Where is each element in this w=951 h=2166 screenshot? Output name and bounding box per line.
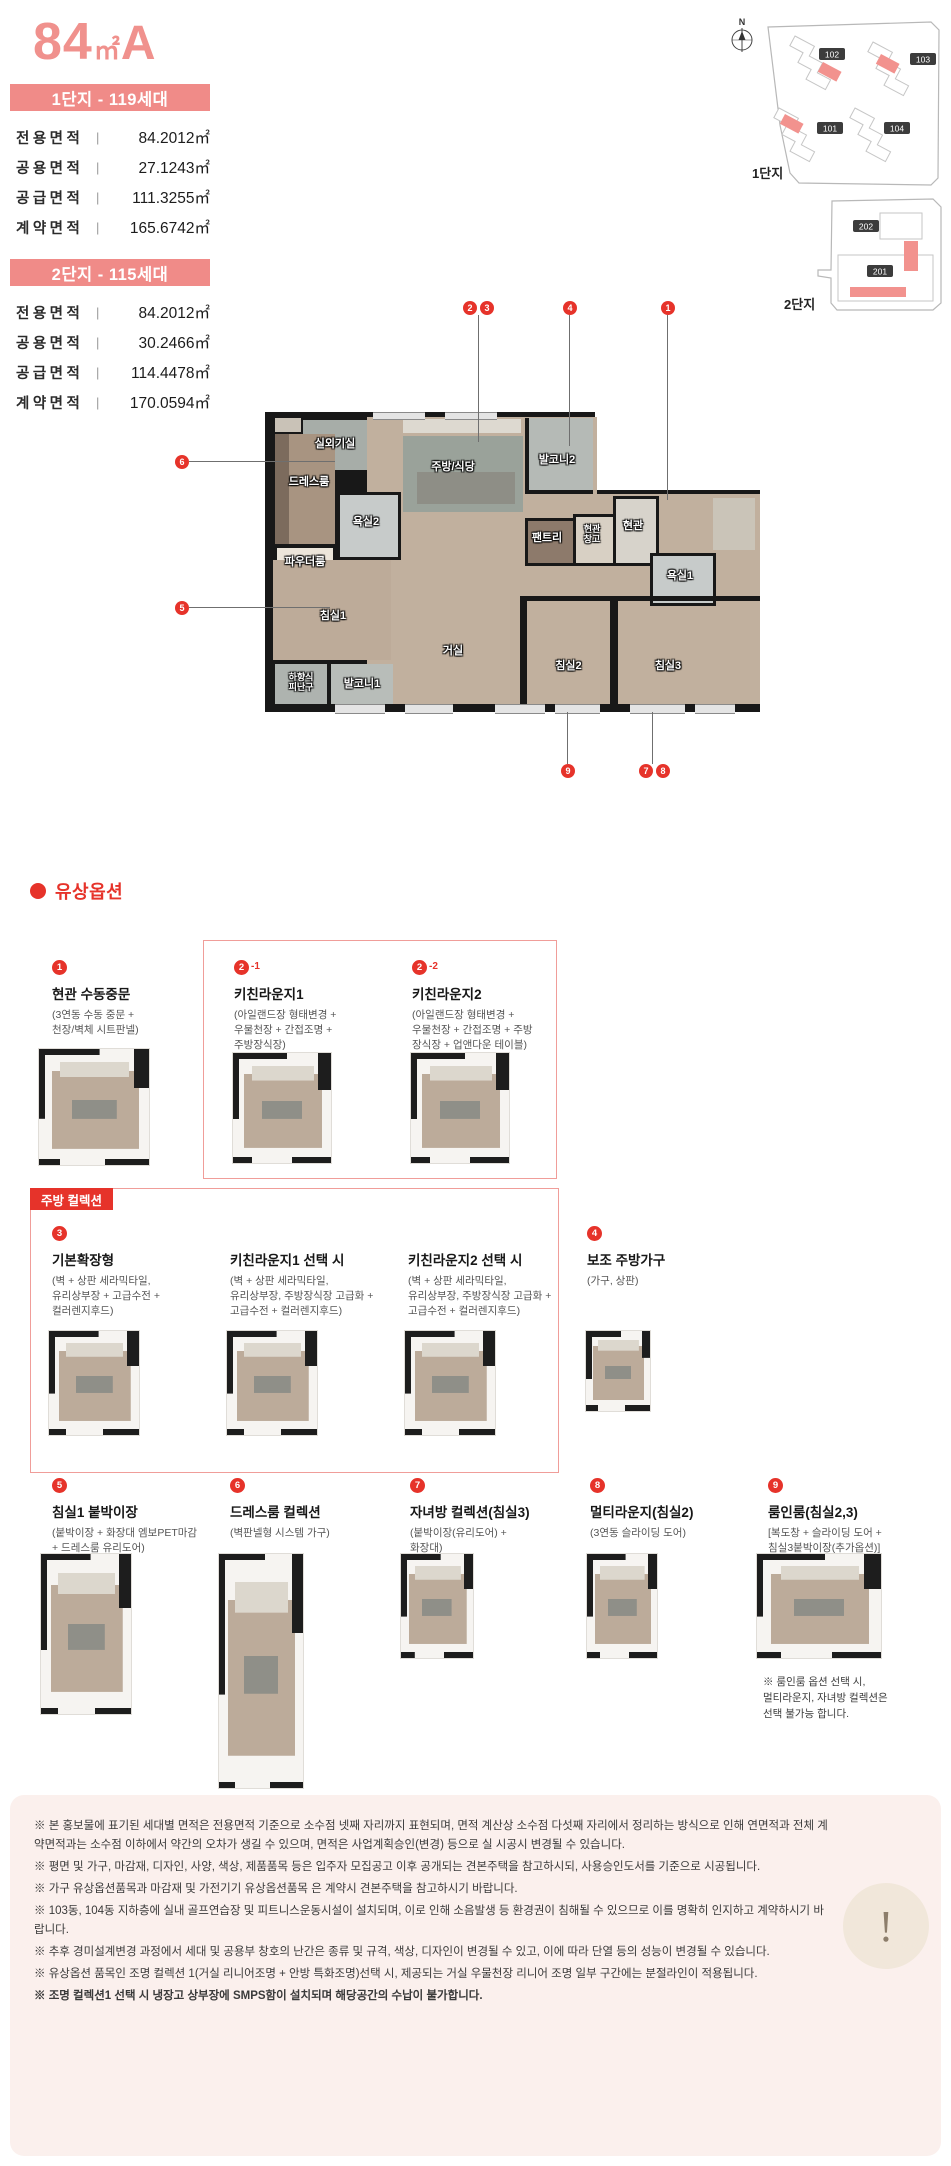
site-plan-complex1: N 102 103 101 104 1단지: [730, 10, 945, 192]
marker-line: [189, 607, 330, 608]
room-label: 파우더룸: [273, 556, 337, 569]
window: [373, 412, 425, 420]
exclamation-icon: !: [843, 1883, 929, 1969]
svg-text:N: N: [739, 17, 746, 27]
disclaimer-line: ※ 103동, 104동 지하층에 실내 골프연습장 및 피트니스운동시설이 설…: [34, 1902, 834, 1940]
option-desc: (붙박이장 + 화장대 엠보PET마감 + 드레스룸 유리도어): [52, 1526, 217, 1556]
disclaimer-text: ※ 본 홍보물에 표기된 세대별 면적은 전용면적 기준으로 소수점 넷째 자리…: [34, 1817, 834, 2009]
room-label: 발코니1: [331, 678, 393, 691]
option-desc: (아일랜드장 형태변경 + 우물천장 + 간접조명 + 주방 장식장 + 업앤다…: [412, 1008, 577, 1053]
option-title: 키친라운지1 선택 시: [230, 1249, 395, 1269]
room-label: 하향식 피난구: [275, 672, 327, 693]
option-thumbnail: [38, 1048, 150, 1166]
option-item-7: 7 자녀방 컬렉션(침실3) (붙박이장(유리도어) + 화장대): [410, 1478, 575, 1556]
disclaimer-line: ※ 평면 및 가구, 마감재, 디자인, 사양, 색상, 제품품목 등은 입주자…: [34, 1858, 834, 1877]
building-number: 103: [916, 55, 930, 65]
option-badge-row: 2-2: [412, 960, 577, 981]
window: [335, 704, 385, 714]
room-label: 팬트리: [521, 532, 573, 545]
area-value: 165.6742㎡: [101, 216, 210, 238]
area-divider: |: [96, 335, 99, 350]
area-row: 공용면적|27.1243㎡: [16, 152, 210, 182]
room-label: 침실2: [527, 660, 610, 673]
building-number: 102: [825, 50, 839, 60]
option-title: 키친라운지1: [234, 983, 399, 1003]
area-divider: |: [96, 305, 99, 320]
area-label: 전용면적: [16, 302, 94, 323]
option-thumbnail: [232, 1052, 332, 1164]
area-value: 84.2012㎡: [101, 126, 210, 148]
option-badge-row: 5: [52, 1478, 217, 1499]
marker-3: 3: [480, 301, 494, 315]
window: [495, 704, 545, 714]
disclaimer-line: ※ 유상옵션 품목인 조명 컬렉션 1(거실 리니어조명 + 안방 특화조명)선…: [34, 1965, 834, 1984]
floor-plan: 실외기실 드레스룸 파우더룸 욕실2 주방/식당 발코니2 팬트리 현관 창고 …: [265, 412, 760, 712]
option-title: 드레스룸 컬렉션: [230, 1501, 395, 1521]
kitchen-item-lounge2: 키친라운지2 선택 시 (벽 + 상판 세라믹타일, 유리상부장, 주방장식장 …: [408, 1226, 573, 1319]
area-row: 계약면적|170.0594㎡: [16, 387, 210, 417]
room-label: 발코니2: [525, 454, 589, 467]
building-202: [880, 213, 922, 239]
area-divider: |: [96, 365, 99, 380]
complex1-banner: 1단지 - 119세대: [10, 84, 210, 111]
area-row: 전용면적|84.2012㎡: [16, 122, 210, 152]
area-row: 계약면적|165.6742㎡: [16, 212, 210, 242]
option-title: 기본확장형: [52, 1249, 217, 1269]
area-row: 공용면적|30.2466㎡: [16, 327, 210, 357]
option-thumbnail: [48, 1330, 140, 1436]
option-desc: (벽 + 상판 세라믹타일, 유리상부장, 주방장식장 고급화 + 고급수전 +…: [230, 1274, 395, 1319]
option-number-badge: 4: [587, 1226, 602, 1241]
window: [445, 412, 497, 420]
paid-options-heading: 유상옵션: [30, 878, 123, 904]
option-number-badge: 5: [52, 1478, 67, 1493]
kitchen-island: [417, 472, 515, 504]
option-badge-row: [230, 1226, 395, 1247]
complex1-area-table: 전용면적|84.2012㎡ 공용면적|27.1243㎡ 공급면적|111.325…: [16, 122, 210, 242]
bullet-icon: [30, 883, 46, 899]
area-divider: |: [96, 220, 99, 235]
option-thumbnail: [756, 1553, 882, 1659]
brochure-page: 84㎡A 1단지 - 119세대 전용면적|84.2012㎡ 공용면적|27.1…: [0, 0, 951, 2166]
option-number-badge: 7: [410, 1478, 425, 1493]
option-desc: (벽 + 상판 세라믹타일, 유리상부장 + 고급수전 + 컬러렌지후드): [52, 1274, 217, 1319]
window: [695, 704, 735, 714]
option-thumbnail: [218, 1553, 304, 1789]
option-badge-row: 7: [410, 1478, 575, 1499]
option-badge-row: 3: [52, 1226, 217, 1247]
area-divider: |: [96, 160, 99, 175]
complex2-area-table: 전용면적|84.2012㎡ 공용면적|30.2466㎡ 공급면적|114.447…: [16, 297, 210, 417]
room-label: 침실3: [618, 660, 718, 673]
wall: [520, 596, 527, 704]
area-value: 30.2466㎡: [101, 331, 210, 353]
area-label: 전용면적: [16, 127, 94, 148]
unit-title: 84㎡A: [33, 12, 156, 72]
option-number-badge: 8: [590, 1478, 605, 1493]
option-desc: (벽판넬형 시스템 가구): [230, 1526, 395, 1541]
room-label: 욕실2: [337, 516, 395, 529]
option-title: 현관 수동중문: [52, 983, 217, 1003]
area-divider: |: [96, 395, 99, 410]
option-badge-row: 9: [768, 1478, 943, 1499]
option-title: 룸인룸(침실2,3): [768, 1501, 943, 1521]
room-label: 실외기실: [303, 438, 367, 451]
option-thumbnail: [586, 1553, 658, 1659]
marker-line: [478, 315, 479, 442]
unit-size: 84: [33, 12, 93, 72]
area-label: 공용면적: [16, 332, 94, 353]
area-value: 27.1243㎡: [101, 156, 210, 178]
option-suffix: -2: [429, 961, 438, 972]
option-number-badge: 1: [52, 960, 67, 975]
option-desc: (아일랜드장 형태변경 + 우물천장 + 간접조명 + 주방장식장): [234, 1008, 399, 1053]
kitchen-item-basic: 3 기본확장형 (벽 + 상판 세라믹타일, 유리상부장 + 고급수전 + 컬러…: [52, 1226, 217, 1319]
option-badge-row: 8: [590, 1478, 755, 1499]
option-title: 키친라운지2 선택 시: [408, 1249, 573, 1269]
marker-line: [567, 712, 568, 764]
option-suffix: -1: [251, 961, 260, 972]
marker-1: 1: [661, 301, 675, 315]
room-label: 거실: [413, 645, 493, 658]
plan-outside: [595, 412, 760, 490]
option-thumbnail: [400, 1553, 474, 1659]
room-utility: [713, 498, 755, 550]
area-value: 111.3255㎡: [101, 186, 210, 208]
option-thumbnail: [410, 1052, 510, 1164]
disclaimer-line: ※ 가구 유상옵션품목과 마감재 및 가전기기 유상옵션품목 은 계약시 견본주…: [34, 1880, 834, 1899]
marker-6: 6: [175, 455, 189, 469]
marker-9: 9: [561, 764, 575, 778]
site2-label: 2단지: [784, 297, 815, 312]
area-label: 공급면적: [16, 362, 94, 383]
marker-line: [189, 461, 335, 462]
marker-8: 8: [656, 764, 670, 778]
option-title: 자녀방 컬렉션(침실3): [410, 1501, 575, 1521]
kitchen-collection-banner: 주방 컬렉션: [30, 1188, 113, 1210]
closet-strip: [275, 418, 301, 432]
option-desc: [복도창 + 슬라이딩 도어 + 침실3붙박이장(추가옵션)]: [768, 1526, 943, 1556]
window: [630, 704, 685, 714]
option-desc: (3연동 슬라이딩 도어): [590, 1526, 755, 1541]
unit-highlight: [850, 287, 906, 297]
option-number-badge: 3: [52, 1226, 67, 1241]
option-item-2-2: 2-2 키친라운지2 (아일랜드장 형태변경 + 우물천장 + 간접조명 + 주…: [412, 960, 577, 1053]
room-label: 주방/식당: [403, 461, 503, 474]
option-thumbnail: [40, 1553, 132, 1715]
building-number: 101: [823, 124, 837, 134]
site1-label: 1단지: [752, 166, 783, 181]
building-number: 104: [890, 124, 904, 134]
area-value: 84.2012㎡: [101, 301, 210, 323]
option-desc: (가구, 상판): [587, 1274, 752, 1289]
option-thumbnail: [226, 1330, 318, 1436]
option-item-5: 5 침실1 붙박이장 (붙박이장 + 화장대 엠보PET마감 + 드레스룸 유리…: [52, 1478, 217, 1556]
room-in-room-note: ※ 룸인룸 옵션 선택 시, 멀티라운지, 자녀방 컬렉션은 선택 불가능 합니…: [763, 1674, 943, 1722]
option-thumbnail: [404, 1330, 496, 1436]
option-item-9: 9 룸인룸(침실2,3) [복도창 + 슬라이딩 도어 + 침실3붙박이장(추가…: [768, 1478, 943, 1556]
unit-sqm: ㎡: [94, 30, 120, 67]
room-label: 침실1: [293, 610, 373, 623]
disclaimer-line: ※ 본 홍보물에 표기된 세대별 면적은 전용면적 기준으로 소수점 넷째 자리…: [34, 1817, 834, 1855]
option-item-8: 8 멀티라운지(침실2) (3연동 슬라이딩 도어): [590, 1478, 755, 1541]
room-label: 욕실1: [650, 570, 710, 583]
building-number: 201: [873, 267, 887, 277]
option-number-badge: 2: [412, 960, 427, 975]
room-label: 드레스룸: [273, 476, 345, 489]
marker-line: [652, 712, 653, 764]
kitchen-item-aux: 4 보조 주방가구 (가구, 상판): [587, 1226, 752, 1289]
disclaimer-line: ※ 추후 경미설계변경 과정에서 세대 및 공용부 창호의 난간은 종류 및 규…: [34, 1943, 834, 1962]
unit-highlight: [904, 241, 918, 271]
option-item-6: 6 드레스룸 컬렉션 (벽판넬형 시스템 가구): [230, 1478, 395, 1541]
option-badge-row: 2-1: [234, 960, 399, 981]
option-desc: (붙박이장(유리도어) + 화장대): [410, 1526, 575, 1556]
area-row: 전용면적|84.2012㎡: [16, 297, 210, 327]
option-desc: (3연동 수동 중문 + 천장/벽체 시트판넬): [52, 1008, 217, 1038]
marker-line: [569, 315, 570, 446]
option-number-badge: 9: [768, 1478, 783, 1493]
option-badge-row: [408, 1226, 573, 1247]
room-label: 현관: [613, 520, 653, 533]
room-label: 현관 창고: [571, 524, 613, 545]
kitchen-counter: [403, 419, 521, 433]
option-title: 침실1 붙박이장: [52, 1501, 217, 1521]
area-row: 공급면적|114.4478㎡: [16, 357, 210, 387]
building-number: 202: [859, 222, 873, 232]
area-label: 공급면적: [16, 187, 94, 208]
kitchen-item-lounge1: 키친라운지1 선택 시 (벽 + 상판 세라믹타일, 유리상부장, 주방장식장 …: [230, 1226, 395, 1319]
area-label: 계약면적: [16, 392, 94, 413]
option-title: 키친라운지2: [412, 983, 577, 1003]
unit-type: A: [121, 16, 156, 71]
area-divider: |: [96, 190, 99, 205]
option-badge-row: 6: [230, 1478, 395, 1499]
option-number-badge: 6: [230, 1478, 245, 1493]
area-value: 170.0594㎡: [101, 391, 210, 413]
window: [405, 704, 453, 714]
area-value: 114.4478㎡: [101, 361, 210, 383]
site-plan-complex2: 202 201 2단지: [770, 193, 950, 320]
marker-5: 5: [175, 601, 189, 615]
section-title: 유상옵션: [55, 878, 123, 904]
option-item-2-1: 2-1 키친라운지1 (아일랜드장 형태변경 + 우물천장 + 간접조명 + 주…: [234, 960, 399, 1053]
area-row: 공급면적|111.3255㎡: [16, 182, 210, 212]
disclaimer-line: ※ 조명 컬렉션1 선택 시 냉장고 상부장에 SMPS함이 설치되며 해당공간…: [34, 1987, 834, 2006]
option-title: 멀티라운지(침실2): [590, 1501, 755, 1521]
option-number-badge: 2: [234, 960, 249, 975]
option-title: 보조 주방가구: [587, 1249, 752, 1269]
complex2-banner: 2단지 - 115세대: [10, 259, 210, 286]
compass-icon: N: [732, 17, 752, 52]
window: [555, 704, 600, 714]
option-badge-row: 4: [587, 1226, 752, 1247]
option-item-1: 1 현관 수동중문 (3연동 수동 중문 + 천장/벽체 시트판넬): [52, 960, 217, 1038]
option-desc: (벽 + 상판 세라믹타일, 유리상부장, 주방장식장 고급화 + 고급수전 +…: [408, 1274, 573, 1319]
area-label: 공용면적: [16, 157, 94, 178]
marker-2: 2: [463, 301, 477, 315]
area-label: 계약면적: [16, 217, 94, 238]
marker-4: 4: [563, 301, 577, 315]
disclaimer-box: ※ 본 홍보물에 표기된 세대별 면적은 전용면적 기준으로 소수점 넷째 자리…: [10, 1795, 941, 2156]
wall: [610, 596, 618, 704]
option-badge-row: 1: [52, 960, 217, 981]
option-thumbnail: [585, 1330, 651, 1412]
marker-line: [667, 315, 668, 500]
marker-7: 7: [639, 764, 653, 778]
wall: [520, 596, 760, 601]
area-divider: |: [96, 130, 99, 145]
